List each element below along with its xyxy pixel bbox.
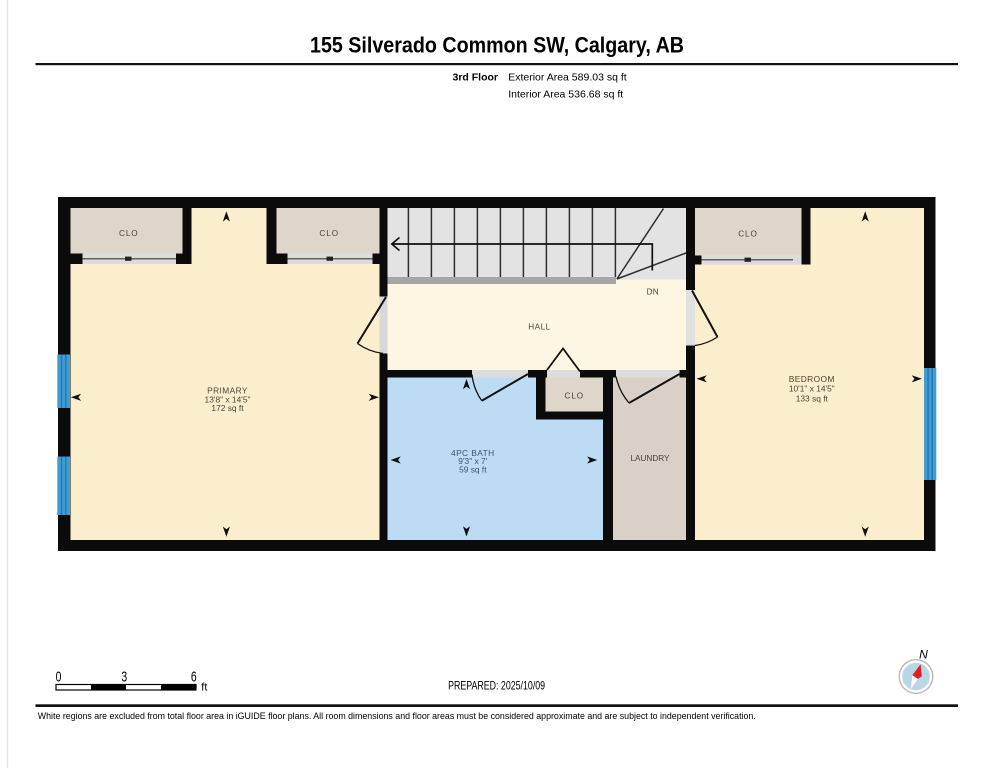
svg-text:BEDROOM: BEDROOM (789, 374, 835, 384)
svg-text:CLO: CLO (565, 392, 585, 401)
svg-text:N: N (919, 648, 928, 662)
svg-text:Exterior Area 589.03 sq ft: Exterior Area 589.03 sq ft (508, 72, 627, 84)
svg-text:172 sq ft: 172 sq ft (211, 403, 244, 413)
svg-text:CLO: CLO (319, 229, 339, 238)
svg-text:White regions are excluded fro: White regions are excluded from total fl… (38, 711, 756, 721)
svg-text:DN: DN (647, 287, 659, 296)
svg-text:Interior Area 536.68 sq ft: Interior Area 536.68 sq ft (508, 88, 623, 100)
svg-text:LAUNDRY: LAUNDRY (631, 454, 671, 463)
svg-text:3: 3 (121, 669, 127, 686)
svg-text:10'1" x 14'5": 10'1" x 14'5" (789, 384, 835, 394)
svg-text:6: 6 (191, 669, 197, 686)
svg-text:0: 0 (56, 669, 62, 686)
svg-text:PREPARED: 2025/10/09: PREPARED: 2025/10/09 (448, 679, 545, 693)
svg-text:ft: ft (201, 682, 207, 694)
svg-text:CLO: CLO (738, 229, 758, 238)
svg-text:3rd Floor: 3rd Floor (452, 72, 498, 84)
svg-text:HALL: HALL (528, 323, 550, 332)
svg-text:59 sq ft: 59 sq ft (459, 465, 487, 475)
svg-text:133 sq ft: 133 sq ft (796, 393, 829, 403)
svg-text:155 Silverado Common SW, Calga: 155 Silverado Common SW, Calgary, AB (310, 33, 684, 58)
svg-text:CLO: CLO (119, 229, 139, 238)
